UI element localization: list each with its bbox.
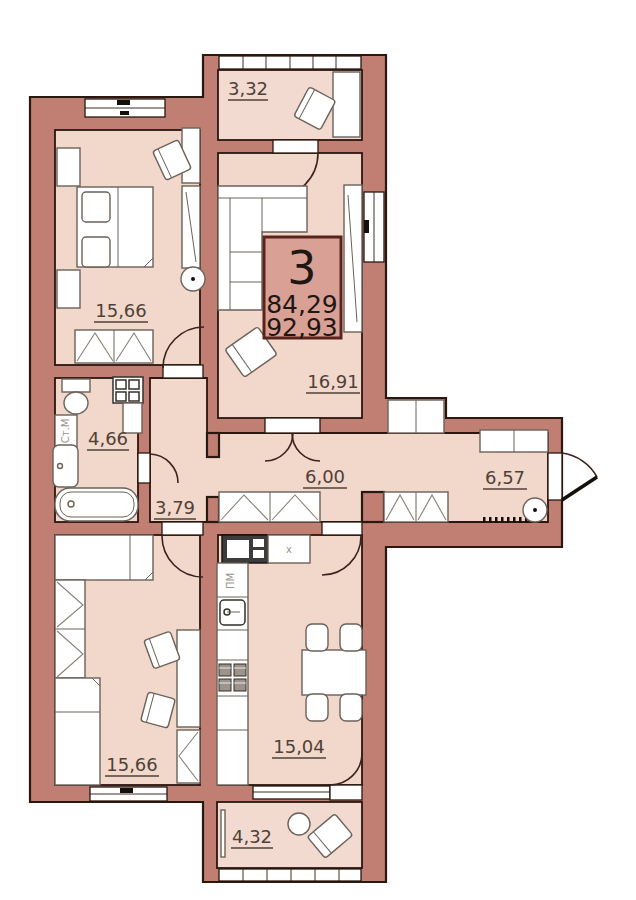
living-wardrobe [344, 185, 362, 332]
svg-text:15,66: 15,66 [106, 754, 158, 775]
balcony-bottom-rack [221, 810, 225, 857]
window-balcony-bottom [219, 869, 361, 881]
bedroom-wardrobe-bottom [75, 330, 153, 363]
kitchen-chair-1 [306, 624, 328, 651]
window-bedroom [85, 99, 165, 117]
floor-plan: 3 84,29 92,93 Ст.М [0, 0, 636, 900]
label-balcony-top: 3,32 [228, 78, 268, 100]
svg-text:6,57: 6,57 [485, 467, 525, 488]
label-kitchen: 15,04 [272, 736, 326, 758]
kitchen-chair-3 [306, 694, 328, 721]
bathroom-washer: Ст.М [55, 415, 77, 447]
svg-text:3,79: 3,79 [155, 497, 195, 518]
entry-wardrobe-top [480, 430, 548, 452]
entry-pouffe [523, 498, 547, 522]
svg-text:6,00: 6,00 [305, 466, 345, 487]
dishwasher-label: ПМ [225, 573, 236, 589]
kitchen-table [302, 650, 366, 695]
kitchen-oven [222, 535, 268, 563]
label-bathroom: 4,66 [87, 428, 129, 450]
room-lower-wardrobe-left [55, 580, 85, 678]
wall-stub-hall-top [207, 433, 219, 457]
bathroom-bathtub [55, 488, 138, 521]
label-corridor: 6,00 [303, 466, 347, 488]
area-total: 92,93 [266, 313, 338, 342]
wall-stub-hall-bottom [207, 497, 219, 522]
wall-stub-corridor [362, 492, 384, 522]
bathroom-cabinet [113, 377, 143, 403]
svg-text:16,91: 16,91 [307, 371, 359, 392]
washer-label: Ст.М [60, 419, 71, 444]
kitchen-sink [220, 600, 245, 625]
corridor-wardrobe [219, 492, 320, 522]
label-bedroom: 15,66 [94, 300, 148, 322]
svg-text:3,32: 3,32 [228, 78, 268, 99]
bedroom-nightstand-bottom [57, 270, 80, 308]
room-lower-bed-left [55, 678, 100, 785]
label-entry-corridor: 6,57 [483, 467, 527, 489]
entry-niche-closet [388, 400, 444, 433]
info-box: 3 84,29 92,93 [264, 237, 341, 342]
window-living-right [364, 192, 384, 262]
bedroom-wardrobe-right [182, 186, 200, 268]
room-lower-desk [177, 630, 200, 727]
label-living: 16,91 [306, 371, 360, 393]
svg-text:15,04: 15,04 [273, 736, 325, 757]
room-lower-wardrobe-corner [177, 730, 200, 783]
kitchen-chair-2 [340, 624, 362, 651]
door-entry [548, 453, 597, 500]
bathroom-toilet [62, 379, 90, 414]
svg-text:4,32: 4,32 [232, 826, 272, 847]
balcony-top-desk [333, 72, 360, 137]
bedroom-bed [77, 187, 153, 267]
entry-wardrobe-bottom [384, 492, 448, 522]
svg-text:15,66: 15,66 [95, 300, 147, 321]
balcony-bottom-table [288, 813, 310, 835]
window-kitchen-balcony [253, 786, 330, 799]
bedroom-stool [181, 267, 205, 291]
kitchen-fridge: x [268, 535, 310, 563]
bedroom-nightstand-top [57, 148, 80, 186]
unit-number: 3 [287, 241, 316, 295]
room-lower-bed-top [55, 535, 153, 580]
window-room-lower [90, 787, 167, 801]
floor-plan-svg: 3 84,29 92,93 Ст.М [0, 0, 636, 900]
window-balcony-top [219, 56, 361, 69]
fridge-label: x [286, 544, 292, 555]
label-room-lower: 15,66 [105, 754, 159, 776]
kitchen-chair-4 [340, 694, 362, 721]
label-hall: 3,79 [154, 497, 196, 519]
svg-text:4,66: 4,66 [88, 428, 128, 449]
label-balcony-bottom: 4,32 [231, 826, 273, 848]
bathroom-sink [53, 445, 78, 487]
